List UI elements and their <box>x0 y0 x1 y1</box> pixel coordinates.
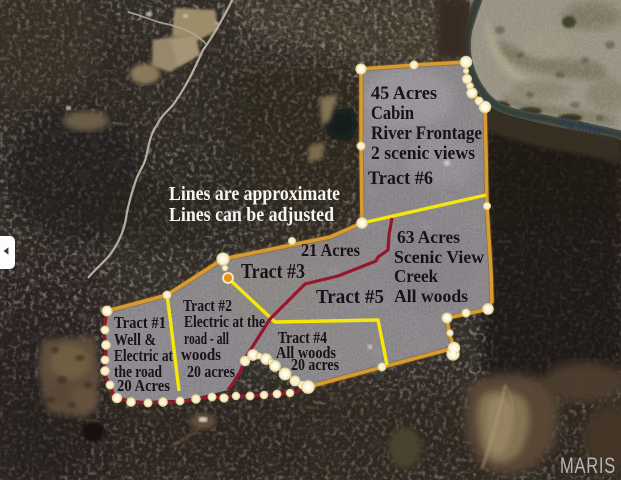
svg-text:Tract #6: Tract #6 <box>368 168 433 189</box>
svg-text:Tract #5: Tract #5 <box>316 286 384 308</box>
svg-text:Cabin: Cabin <box>371 103 414 124</box>
svg-text:Lines are approximate: Lines are approximate <box>169 183 340 205</box>
svg-text:River Frontage: River Frontage <box>371 123 482 144</box>
svg-text:All woods: All woods <box>394 286 468 306</box>
svg-text:20 acres: 20 acres <box>291 355 339 374</box>
svg-text:21 Acres: 21 Acres <box>301 240 360 260</box>
svg-text:20 acres: 20 acres <box>187 362 235 381</box>
svg-text:2 scenic views: 2 scenic views <box>371 143 475 164</box>
svg-text:Creek: Creek <box>394 266 438 286</box>
svg-text:45 Acres: 45 Acres <box>371 83 437 104</box>
svg-text:Scenic View: Scenic View <box>394 247 484 267</box>
svg-text:63 Acres: 63 Acres <box>397 227 460 247</box>
svg-text:MARIS: MARIS <box>560 453 616 478</box>
svg-text:Lines can be adjusted: Lines can be adjusted <box>169 204 334 226</box>
svg-text:20 Acres: 20 Acres <box>117 376 171 395</box>
svg-text:Tract #3: Tract #3 <box>241 259 305 283</box>
